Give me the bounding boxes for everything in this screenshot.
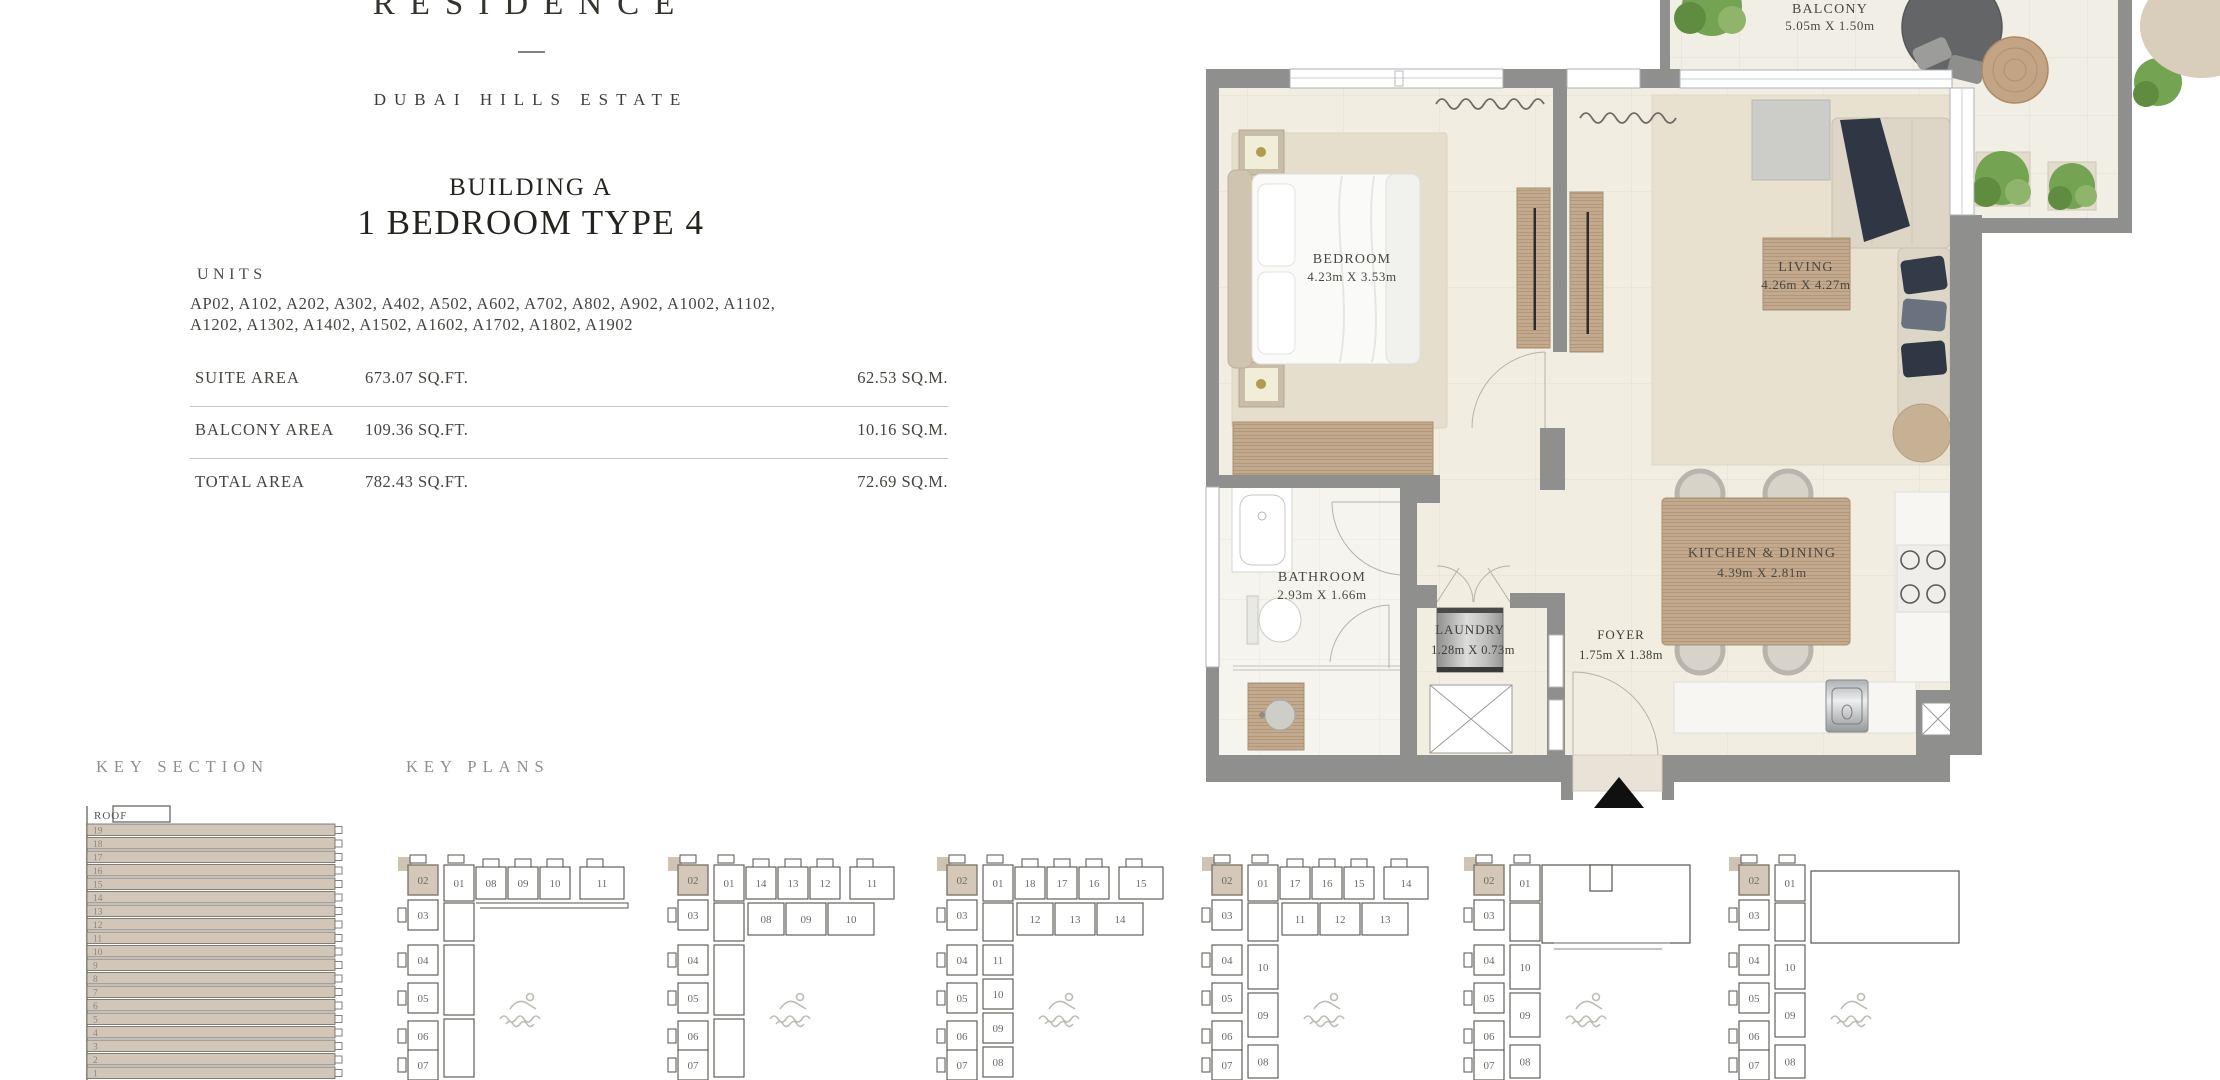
unit-number: 06 (418, 1031, 430, 1043)
unit-number: 11 (1295, 914, 1306, 926)
unit-number: 06 (1222, 1031, 1234, 1043)
unit-number: 16 (1322, 878, 1334, 890)
unit-number: 12 (1030, 914, 1041, 926)
unit-number: 06 (688, 1031, 700, 1043)
swimmer-icon (1831, 994, 1871, 1027)
unit-number: 05 (1749, 993, 1761, 1005)
unit-number: 08 (1520, 1057, 1532, 1069)
balcony-table (1982, 37, 2048, 103)
floor-bar (87, 1000, 335, 1012)
floor-number: 16 (93, 867, 103, 877)
floor-number: 13 (93, 908, 103, 918)
floor-bar (87, 878, 335, 890)
floor-bar (87, 1040, 335, 1052)
unit-number: 07 (957, 1060, 969, 1072)
floor-number: 12 (93, 921, 103, 931)
unit-number: 13 (1380, 914, 1392, 926)
floor-bar (87, 1027, 335, 1039)
unit-number: 17 (1057, 878, 1069, 890)
brochure-page: RESIDENCE DUBAI HILLS ESTATE BUILDING A … (0, 0, 2220, 1080)
bathroom-dims: 2.93m X 1.66m (1277, 587, 1366, 602)
key-plan-unit-box (1510, 903, 1540, 941)
key-plan: 0203040506070108091011 (398, 855, 628, 1080)
unit-number: 11 (867, 878, 878, 890)
kitchen-dining-label: KITCHEN & DINING (1688, 546, 1836, 561)
unit-number: 12 (1335, 914, 1346, 926)
unit-number: 07 (418, 1060, 430, 1072)
key-plan-unit-box (1248, 903, 1278, 941)
floor-number: 4 (93, 1029, 98, 1039)
floor-bar (87, 824, 335, 836)
bathtub (1232, 487, 1292, 572)
floor-bar (87, 986, 335, 998)
unit-number: 14 (1115, 914, 1127, 926)
graphics-canvas: BALCONY 5.05m X 1.50m (0, 0, 2220, 1080)
floor-number: 9 (93, 962, 98, 972)
unit-number: 08 (761, 914, 773, 926)
unit-number: 03 (1484, 910, 1496, 922)
living-dims: 4.26m X 4.27m (1761, 277, 1850, 292)
key-plan: 02030405060701100908 (1464, 855, 1690, 1080)
unit-number: 01 (1258, 878, 1269, 890)
unit-number: 01 (454, 878, 465, 890)
bedroom-dims: 4.23m X 3.53m (1307, 269, 1396, 284)
media-unit (1752, 100, 1830, 180)
unit-number: 10 (550, 878, 562, 890)
unit-number: 17 (1290, 878, 1302, 890)
unit-number: 09 (993, 1023, 1005, 1035)
key-plan-unit-box (714, 903, 744, 941)
pouf (1893, 404, 1951, 462)
key-plan-unit-box (714, 945, 744, 1015)
unit-number: 03 (1222, 910, 1234, 922)
unit-number: 09 (1785, 1010, 1797, 1022)
unit-number: 09 (1520, 1010, 1532, 1022)
unit-number: 02 (1484, 875, 1495, 887)
unit-number: 13 (1070, 914, 1082, 926)
floor-plan: BALCONY 5.05m X 1.50m (1206, 0, 2220, 808)
living-area: LIVING 4.26m X 4.27m (1652, 95, 1951, 465)
unit-number: 10 (1785, 962, 1797, 974)
window (1206, 487, 1219, 667)
unit-number: 04 (957, 955, 969, 967)
unit-number: 05 (957, 993, 969, 1005)
toilet (1247, 596, 1301, 644)
unit-number: 02 (418, 875, 429, 887)
unit-number: 04 (1222, 955, 1234, 967)
washing-machine (1437, 608, 1503, 672)
floor-number: 3 (93, 1043, 98, 1053)
floor-number: 6 (93, 1002, 98, 1012)
unit-number: 08 (1258, 1057, 1270, 1069)
unit-number: 08 (486, 878, 498, 890)
unit-number: 04 (418, 955, 430, 967)
floor-number: 11 (93, 935, 102, 945)
key-plan-unit-box (444, 945, 474, 1015)
key-plan: 0203040506070114131211080910 (668, 855, 894, 1080)
unit-number: 03 (418, 910, 430, 922)
key-plan-unit-box (983, 903, 1013, 941)
shaft-box (1922, 703, 1954, 735)
unit-number: 01 (993, 878, 1004, 890)
floor-number: 2 (93, 1056, 98, 1066)
floor-bar (87, 905, 335, 917)
unit-number: 11 (993, 955, 1004, 967)
floor-number: 1 (93, 1070, 98, 1080)
unit-number: 15 (1354, 878, 1366, 890)
floor-bar (87, 1067, 335, 1079)
kitchen-counter-bottom (1674, 682, 1916, 733)
swimmer-icon (1304, 994, 1344, 1027)
bedroom-label: BEDROOM (1313, 252, 1391, 267)
bedroom-area: BEDROOM 4.23m X 3.53m (1228, 130, 1447, 475)
unit-number: 06 (1484, 1031, 1496, 1043)
unit-number: 10 (1258, 962, 1270, 974)
floor-number: 14 (93, 894, 103, 904)
kitchen-dining-area: KITCHEN & DINING 4.39m X 2.81m (1662, 471, 1954, 755)
unit-number: 01 (1520, 878, 1531, 890)
vanity (1248, 683, 1304, 750)
unit-number: 03 (957, 910, 969, 922)
floor-bar (87, 932, 335, 944)
floor-number: 8 (93, 975, 98, 985)
unit-number: 18 (1025, 878, 1037, 890)
floor-number: 18 (93, 840, 103, 850)
unit-number: 02 (688, 875, 699, 887)
key-plan-unit-box (444, 1019, 474, 1077)
roof-terrace-outline (1811, 871, 1959, 943)
unit-number: 05 (1484, 993, 1496, 1005)
key-plan: 02030405060701100908 (1729, 855, 1959, 1080)
swimmer-icon (1039, 994, 1079, 1027)
key-plan: 0203040506070110090817161514111213 (1202, 855, 1428, 1080)
balcony-label: BALCONY (1792, 2, 1868, 17)
unit-number: 15 (1136, 878, 1148, 890)
living-label: LIVING (1778, 260, 1833, 275)
unit-number: 07 (1749, 1060, 1761, 1072)
unit-number: 14 (756, 878, 768, 890)
floor-number: 17 (93, 854, 103, 864)
unit-number: 07 (1222, 1060, 1234, 1072)
key-plan: 020304050607011110090818171615121314 (937, 855, 1163, 1080)
floor-bar (87, 838, 335, 850)
unit-number: 12 (820, 878, 831, 890)
floor-bar (87, 959, 335, 971)
floor-number: 15 (93, 881, 103, 891)
unit-number: 06 (957, 1031, 969, 1043)
floor-number: 19 (93, 827, 103, 837)
key-plan-unit-box (714, 1019, 744, 1077)
floor-bar (87, 1013, 335, 1025)
floor-bar (87, 1054, 335, 1066)
kitchen-sink (1826, 680, 1868, 732)
key-plan-unit-box (444, 903, 474, 941)
unit-number: 04 (1484, 955, 1496, 967)
unit-number: 05 (688, 993, 700, 1005)
unit-number: 09 (1258, 1010, 1270, 1022)
unit-number: 04 (1749, 955, 1761, 967)
laundry-label: LAUNDRY (1435, 622, 1505, 637)
unit-number: 08 (1785, 1057, 1797, 1069)
unit-number: 06 (1749, 1031, 1761, 1043)
floor-bar (87, 892, 335, 904)
unit-number: 02 (1749, 875, 1760, 887)
unit-number: 04 (688, 955, 700, 967)
unit-number: 02 (1222, 875, 1233, 887)
unit-number: 14 (1401, 878, 1413, 890)
swimmer-icon (500, 994, 540, 1027)
unit-number: 09 (518, 878, 530, 890)
unit-number: 07 (688, 1060, 700, 1072)
unit-number: 10 (1520, 962, 1532, 974)
laundry-dims: 1.28m X 0.73m (1431, 643, 1515, 657)
key-section-diagram: ROOF 19181716151413121110987654321 (87, 806, 342, 1080)
unit-number: 10 (993, 989, 1005, 1001)
floor-bar (87, 946, 335, 958)
unit-number: 01 (1785, 878, 1796, 890)
floor-bar (87, 851, 335, 863)
roof-terrace-outline (1542, 865, 1690, 943)
foyer-label: FOYER (1597, 627, 1645, 642)
floor-number: 10 (93, 948, 103, 958)
swimmer-icon (1566, 994, 1606, 1027)
balcony-dims: 5.05m X 1.50m (1785, 18, 1874, 33)
unit-number: 03 (1749, 910, 1761, 922)
unit-number: 07 (1484, 1060, 1496, 1072)
unit-number: 01 (724, 878, 735, 890)
unit-number: 08 (993, 1057, 1005, 1069)
bathroom-label: BATHROOM (1278, 570, 1366, 585)
floor-number: 7 (93, 989, 98, 999)
swimmer-icon (770, 994, 810, 1027)
roof-label: ROOF (94, 810, 127, 822)
foyer-dims: 1.75m X 1.38m (1579, 648, 1663, 662)
bedroom-dresser (1233, 422, 1433, 475)
key-plans-diagrams: 0203040506070108091011020304050607011413… (398, 855, 1959, 1080)
unit-number: 02 (957, 875, 968, 887)
unit-number: 16 (1089, 878, 1101, 890)
floor-bar (87, 919, 335, 931)
kitchen-dining-dims: 4.39m X 2.81m (1717, 565, 1806, 580)
floor-bar (87, 865, 335, 877)
shaft-box (1430, 685, 1512, 753)
unit-number: 05 (418, 993, 430, 1005)
unit-number: 09 (801, 914, 813, 926)
unit-number: 11 (597, 878, 608, 890)
unit-number: 05 (1222, 993, 1234, 1005)
unit-number: 03 (688, 910, 700, 922)
key-plan-unit-box (1775, 903, 1805, 941)
floor-number: 5 (93, 1016, 98, 1026)
unit-number: 10 (846, 914, 858, 926)
unit-number: 13 (788, 878, 800, 890)
floor-bar (87, 973, 335, 985)
